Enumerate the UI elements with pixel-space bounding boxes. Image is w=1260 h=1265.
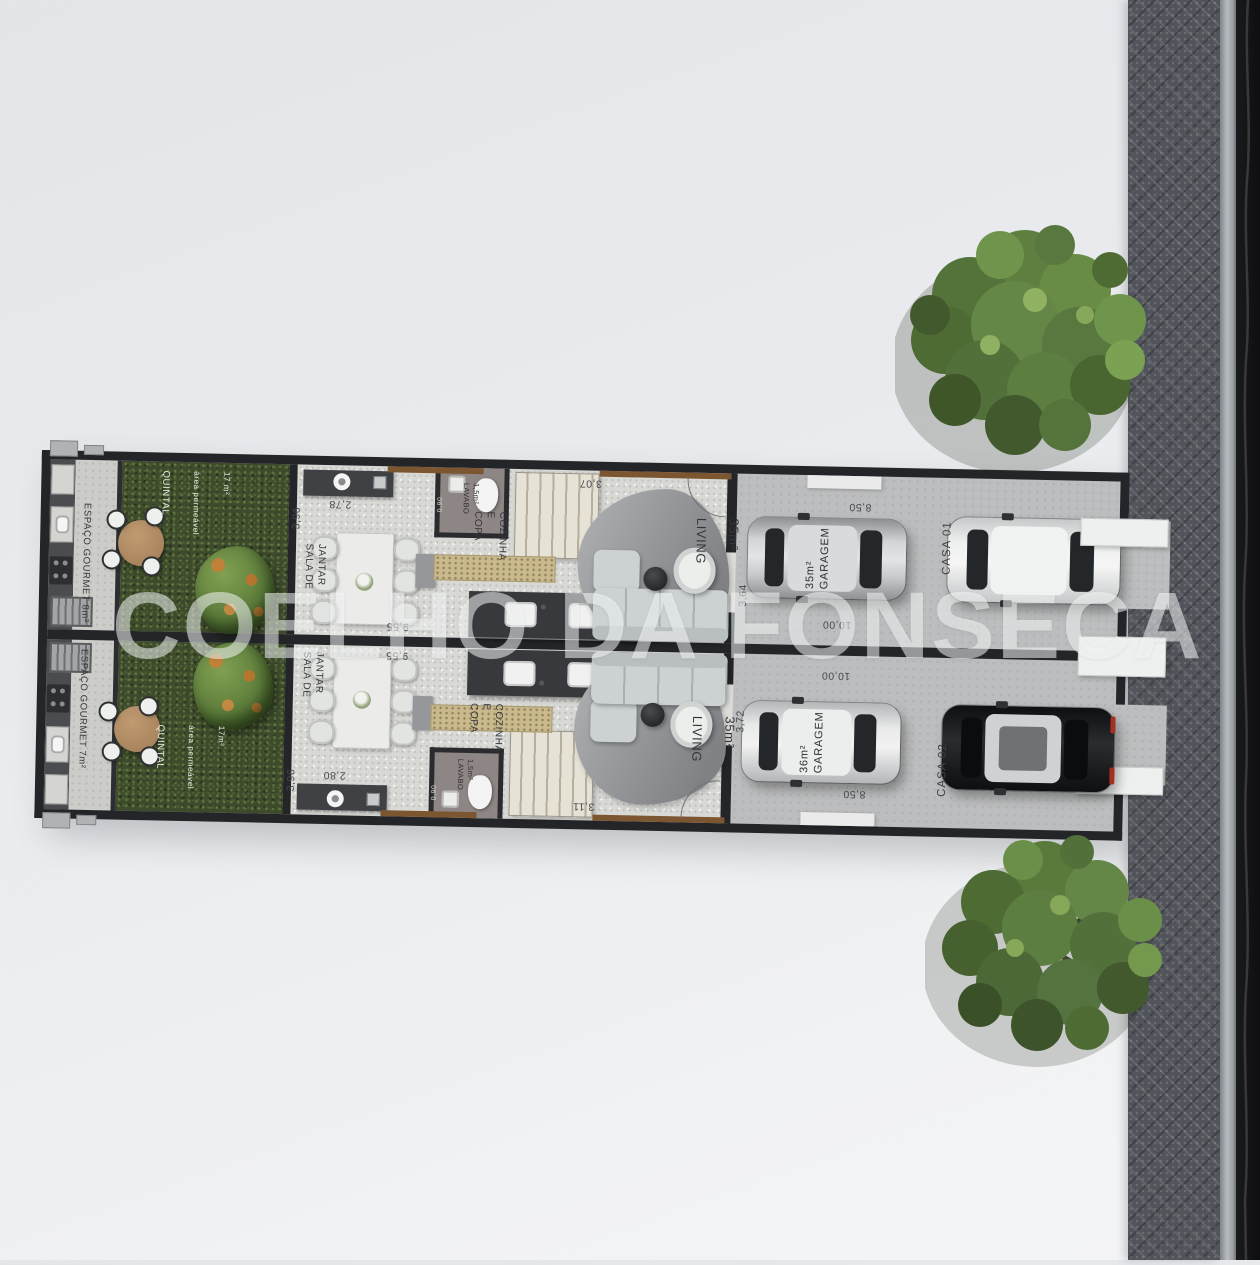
car-mirror	[1002, 513, 1014, 520]
dim-aparador-casa02: 2,80	[323, 769, 346, 781]
ac-unit	[42, 812, 70, 829]
lavabo-label-casa01: LAVABO 1,5m²	[460, 483, 480, 527]
asphalt-road	[1236, 0, 1260, 1260]
dim-garagem-larg-casa01: 8,50	[849, 501, 872, 513]
car-black-casa02	[941, 705, 1115, 793]
chaise	[590, 700, 637, 743]
quintal-subtitle: área permeável	[184, 725, 196, 805]
car-mirror	[994, 788, 1006, 795]
dim-quintal-casa02: 3,96	[285, 749, 298, 791]
quintal-subtitle: área permeável	[190, 471, 202, 551]
faucet	[539, 680, 544, 685]
car-sunroof	[998, 726, 1047, 771]
car-silver-casa02: GARAGEM36m²	[741, 701, 901, 784]
living-name: LIVING	[692, 518, 710, 580]
car-windshield	[1063, 719, 1088, 780]
gourmet-cabinet	[45, 774, 69, 804]
gourmet-cooktop	[49, 556, 73, 584]
casa01-label: CASA 01	[940, 509, 956, 575]
car-rear-window	[759, 712, 779, 770]
decor-box	[367, 793, 380, 806]
decor-box	[373, 476, 386, 489]
lavabo-area: 1,5m²	[464, 759, 475, 803]
dim-hall-casa02: 3,11	[573, 800, 595, 812]
car-roof	[984, 713, 1061, 783]
street-curb	[1220, 0, 1236, 1260]
car-windshield	[854, 714, 877, 772]
living-name: LIVING	[688, 716, 706, 778]
car-mirror	[792, 697, 804, 704]
quintal-title: QUINTAL	[158, 470, 172, 550]
car-rear-window	[960, 717, 982, 778]
quintal-label-casa01: QUINTAL área permeável 17 m²	[138, 470, 252, 552]
gourmet-sink	[55, 515, 69, 533]
car-mirror	[798, 513, 810, 520]
car-taillight	[1109, 767, 1114, 784]
gourmet-cabinet	[51, 464, 75, 494]
dim-lavabo-casa02: 0,90	[431, 772, 439, 800]
dim-garagem-larg-casa02: 8,50	[843, 788, 866, 800]
casa02-label: CASA 02	[935, 731, 951, 797]
gourmet-sink-counter	[45, 726, 69, 762]
gourmet-sink	[51, 735, 65, 753]
quintal-title: QUINTAL	[153, 724, 167, 804]
ac-unit	[50, 440, 78, 457]
dim-entrada-casa02: 3,72	[734, 691, 747, 733]
tree-top	[895, 210, 1165, 480]
gourmet-sink-counter	[50, 506, 74, 542]
gate-post	[800, 812, 874, 827]
ac-unit	[76, 815, 96, 825]
dim-aparador-casa01: 2,78	[329, 498, 352, 510]
dim-lavabo-casa01: 0,90	[437, 484, 445, 512]
gate-post	[807, 475, 881, 490]
watermark: COELHO DA FONSECA	[112, 572, 1203, 681]
quintal-area: 17m²	[214, 726, 226, 806]
ac-unit	[84, 445, 104, 455]
car-mirror	[996, 701, 1008, 708]
quintal-label-casa02: QUINTAL área permeável 17m²	[133, 724, 247, 806]
tree-bottom	[925, 820, 1180, 1075]
car-mirror	[790, 780, 802, 787]
espaco-gourmet-label-casa01: ESPAÇO GOURMET 8m²	[78, 503, 92, 623]
asphalt-crack	[1236, 0, 1260, 1260]
dim-hall-casa01: 3,07	[579, 477, 602, 489]
lavabo-area: 1,5m²	[470, 483, 481, 527]
lavabo-label-casa02: LAVABO 1,5m²	[455, 759, 475, 803]
espaco-gourmet-label-casa02: ESPAÇO GOURMET 7m²	[75, 649, 89, 769]
garagem-label-casa02: GARAGEM36m²	[797, 711, 827, 773]
dim-quintal-casa01: 3,96	[290, 487, 303, 529]
quintal-area: 17 m²	[220, 472, 232, 552]
gourmet-cooktop	[47, 684, 71, 712]
car-taillight	[1110, 716, 1115, 733]
entry-gate-wall	[1080, 518, 1169, 548]
